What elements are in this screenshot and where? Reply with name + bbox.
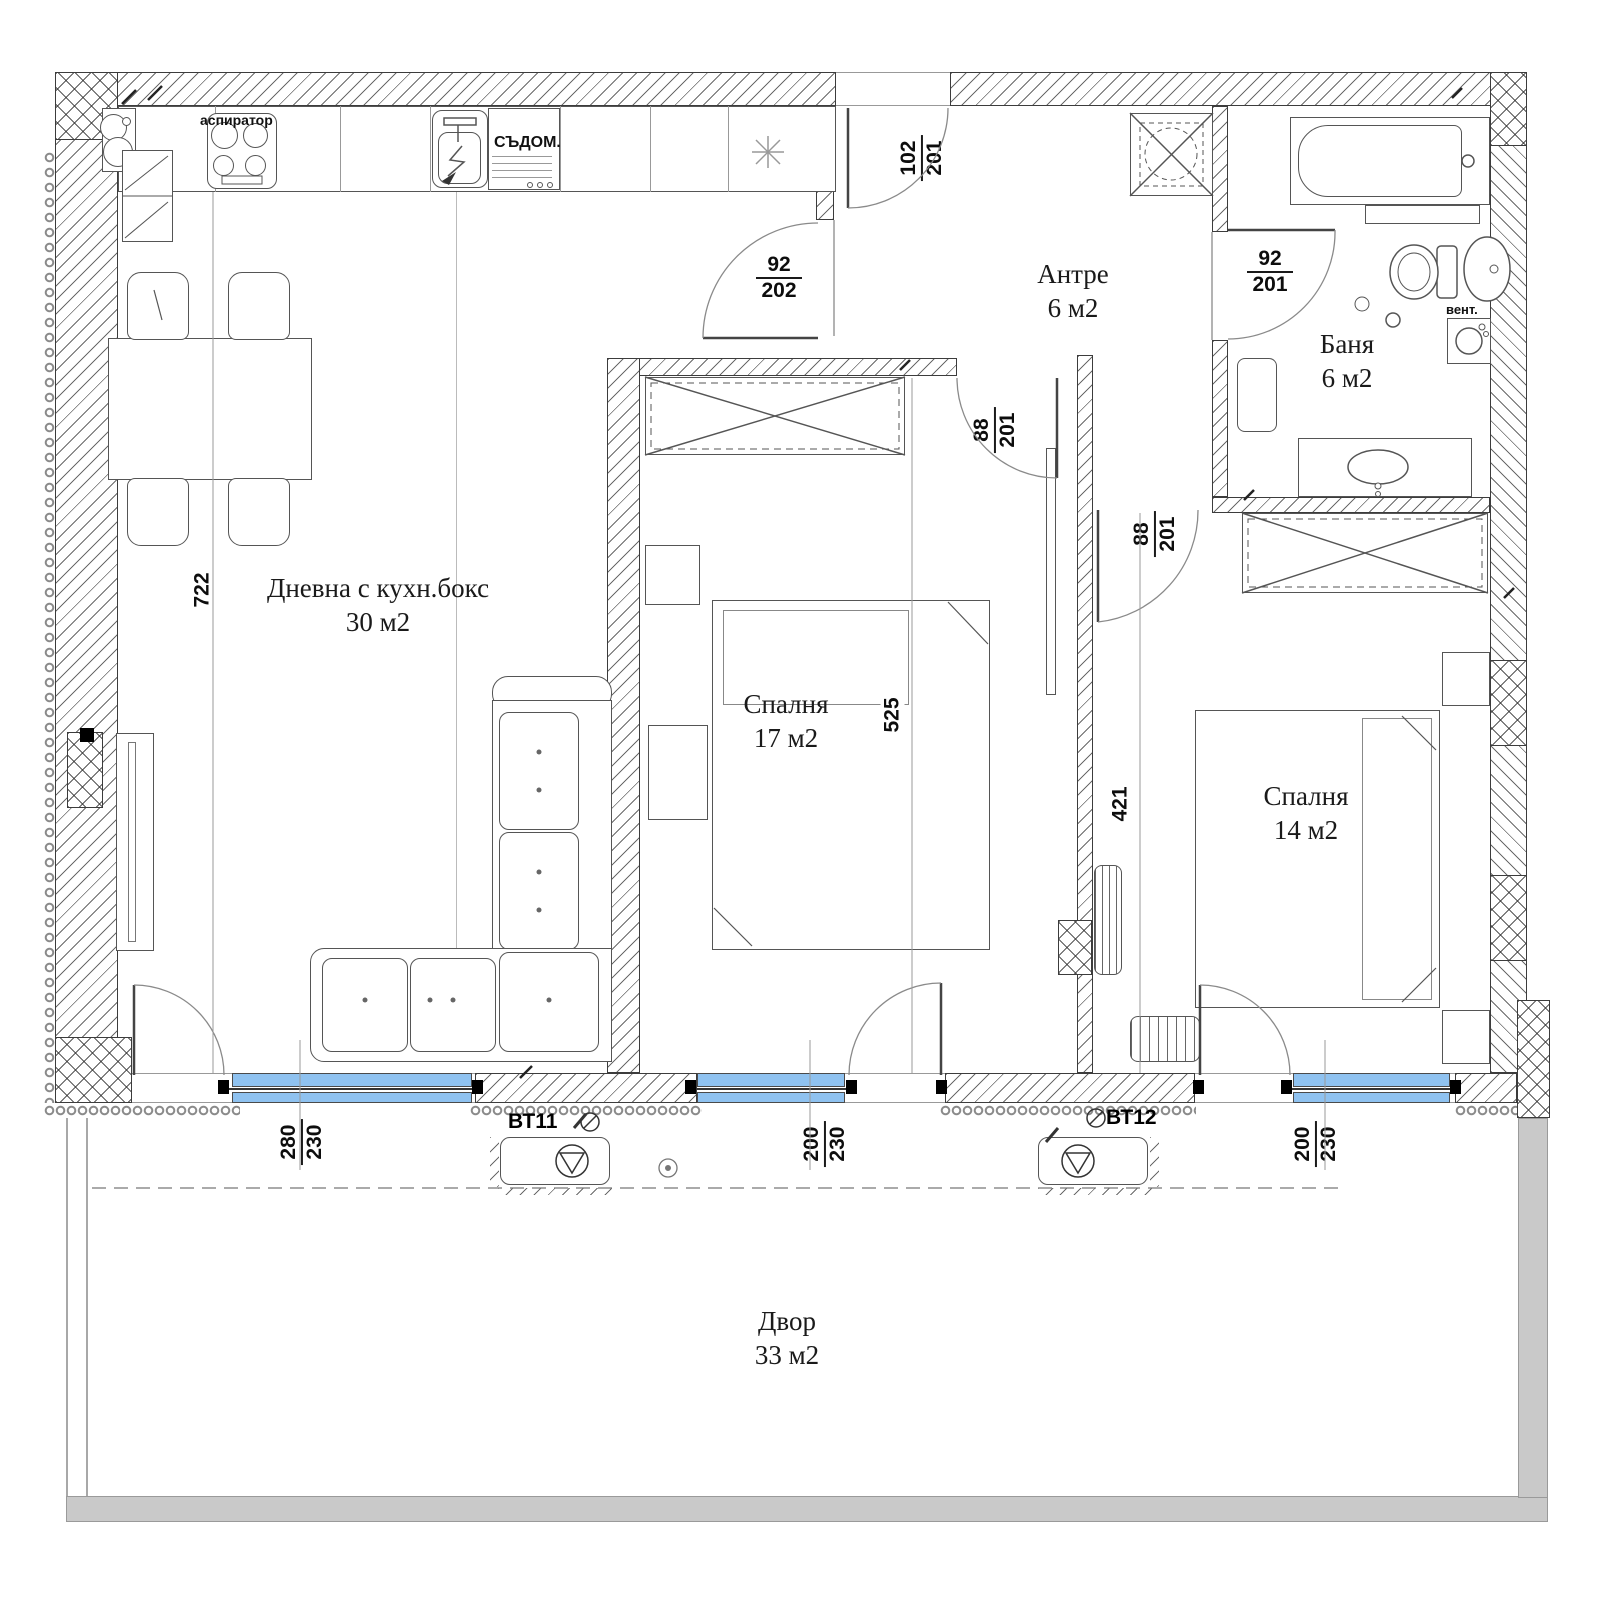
- label-window-living: 280 230: [278, 1107, 326, 1177]
- wall-left-patch: [67, 732, 103, 808]
- label-door-living-hall: 92 202: [753, 254, 805, 302]
- kitchen-oven-unit: [122, 150, 173, 242]
- counter-div-6: [728, 106, 729, 192]
- window-bedroom1-outer: [697, 1073, 845, 1087]
- duct-box: [1058, 920, 1092, 975]
- wall-right-patch-2: [1490, 875, 1527, 961]
- dim-bedroom1-depth: 525: [881, 694, 905, 735]
- toilet-bowl: [1390, 245, 1438, 299]
- yard-right-wall: [1518, 1118, 1548, 1498]
- vt12-hatch-strip: [1150, 1137, 1159, 1187]
- living-name: Дневна с кухн.бокс: [253, 572, 503, 606]
- living-window-height: 230: [304, 1125, 326, 1160]
- hall-area: 6 м2: [993, 292, 1153, 326]
- bed2-pillows: [1362, 718, 1432, 1000]
- hall-name: Антре: [993, 258, 1153, 292]
- dim-living-depth: 722: [191, 569, 215, 610]
- sofa-cushion-v2: [499, 832, 579, 950]
- vt11-vent-box: [500, 1137, 610, 1185]
- marker-2: [472, 1080, 483, 1094]
- bedroom2-door-height: 201: [1157, 517, 1179, 552]
- wall-bath-left-upper: [1212, 106, 1228, 232]
- bedroom2-name: Спалня: [1226, 780, 1386, 814]
- bath-small-circle: [1355, 297, 1369, 311]
- chair-2: [228, 272, 290, 340]
- window-living-outer: [232, 1073, 472, 1087]
- bathtub-ledge: [1365, 205, 1480, 224]
- sofa-cushion-h2: [410, 958, 496, 1052]
- dresser-bedroom1: [648, 725, 708, 820]
- bedroom2-window-height: 230: [1318, 1127, 1340, 1162]
- label-hall: Антре 6 м2: [993, 258, 1153, 326]
- bedroom1-window-height: 230: [827, 1127, 849, 1162]
- label-bedroom1: Спалня 17 м2: [706, 688, 866, 756]
- entry-threshold-top: [836, 72, 950, 73]
- wall-right-corner-bottom: [1517, 1000, 1550, 1118]
- nightstand2-top: [1442, 652, 1490, 706]
- wall-bottom-pier-3: [1455, 1073, 1517, 1103]
- wall-bath-bottom: [1212, 497, 1490, 513]
- marker-7: [1281, 1080, 1292, 1094]
- insulation-bottom-2: [470, 1103, 702, 1118]
- boiler-shaft: [1130, 113, 1213, 196]
- label-yard: Двор 33 м2: [707, 1305, 867, 1373]
- window-bedroom2-frame: [1287, 1088, 1456, 1090]
- sofa-cushion-h1: [322, 958, 408, 1052]
- corner-sink-tap: [122, 117, 131, 126]
- stove-burner-4: [245, 155, 266, 176]
- marker-1: [218, 1080, 229, 1094]
- bedroom1-door-height: 201: [997, 413, 1019, 448]
- toilet-tank: [1437, 246, 1457, 298]
- label-vent: вент.: [1446, 302, 1478, 317]
- nightstand2-bottom: [1442, 1010, 1490, 1064]
- yard-left-wall: [66, 1118, 88, 1500]
- window-bedroom1-inner: [697, 1092, 845, 1103]
- sofa-corner-cushion: [499, 952, 599, 1052]
- dw-line-1: [492, 156, 552, 157]
- wall-right-patch-1: [1490, 660, 1527, 746]
- label-bedroom2: Спалня 14 м2: [1226, 780, 1386, 848]
- wall-bath-left-lower: [1212, 340, 1228, 497]
- bedroom1-yard-door-arc: [849, 983, 941, 1075]
- window-living-frame: [226, 1088, 478, 1090]
- yard-drain-dot: [666, 1166, 671, 1171]
- label-window-bedroom1: 200 230: [801, 1109, 849, 1179]
- counter-div-5: [650, 106, 651, 192]
- window-living-inner: [232, 1092, 472, 1103]
- marker-left-wall: [80, 728, 94, 742]
- vt12-hatch-under: [1038, 1188, 1152, 1195]
- window-bedroom1-frame: [691, 1088, 851, 1090]
- wall-left-corner-bottom: [55, 1037, 132, 1103]
- counter-div-2: [340, 106, 341, 192]
- bedroom2-window-width: 200: [1292, 1127, 1314, 1162]
- yard-bottom-wall: [66, 1496, 1548, 1522]
- wardrobe-bedroom2: [1242, 513, 1488, 593]
- nightstand-bedroom1: [645, 545, 700, 605]
- wall-right-corner-top: [1490, 72, 1527, 146]
- bath-vanity: [1298, 438, 1472, 497]
- label-window-bedroom2: 200 230: [1292, 1109, 1340, 1179]
- insulation-bottom-3: [940, 1103, 1196, 1118]
- wall-bottom-pier-1: [475, 1073, 697, 1103]
- hall-mirror: [1046, 448, 1056, 695]
- washing-machine: [1447, 318, 1491, 364]
- entry-door-height: 201: [924, 141, 946, 176]
- counter-div-3: [430, 106, 431, 192]
- marker-4: [846, 1080, 857, 1094]
- yard-name: Двор: [707, 1305, 867, 1339]
- chair-1: [127, 272, 189, 340]
- label-door-entry: 102 201: [898, 123, 946, 193]
- toilet-bowl-inner: [1398, 253, 1430, 291]
- vt12-vent-box: [1038, 1137, 1148, 1185]
- insulation-bottom-1: [44, 1103, 240, 1118]
- bedroom2-door-width: 88: [1131, 522, 1153, 545]
- label-dishwasher: СЪДОМ.: [494, 134, 561, 152]
- insulation-bottom-4: [1455, 1103, 1517, 1118]
- entry-door-width: 102: [898, 141, 920, 176]
- wall-bedroom1-top: [607, 358, 957, 376]
- wall-top-left: [55, 72, 836, 106]
- vt11-hatch-under: [498, 1188, 612, 1195]
- kitchen-sink-basin: [438, 132, 481, 184]
- entry-threshold-bottom: [836, 105, 950, 106]
- chair-4: [228, 478, 290, 546]
- label-living: Дневна с кухн.бокс 30 м2: [253, 572, 503, 640]
- label-door-bedroom2: 88 201: [1131, 499, 1179, 569]
- bedroom1-window-width: 200: [801, 1127, 823, 1162]
- bath-floor-drain: [1386, 313, 1400, 327]
- radiator-bedroom2-wall: [1094, 865, 1122, 975]
- label-vt12: ВТ12: [1106, 1106, 1157, 1130]
- label-door-bedroom1: 88 201: [971, 395, 1019, 465]
- living-window-width: 280: [278, 1125, 300, 1160]
- radiator-bedroom2-window: [1130, 1016, 1200, 1062]
- tv-screen: [128, 742, 136, 942]
- living-hall-door-height: 202: [761, 280, 796, 302]
- bedroom1-name: Спалня: [706, 688, 866, 722]
- vt11-hatch-strip: [490, 1137, 499, 1187]
- floor-plan: Дневна с кухн.бокс 30 м2 Спалня 17 м2 Сп…: [0, 0, 1600, 1623]
- living-hall-door-width: 92: [767, 254, 790, 276]
- yard-area: 33 м2: [707, 1339, 867, 1373]
- yard-drain-icon: [659, 1159, 677, 1177]
- bedroom1-door-width: 88: [971, 418, 993, 441]
- bath-area: 6 м2: [1267, 362, 1427, 396]
- sofa-cushion-v1: [499, 712, 579, 830]
- dw-line-2: [492, 163, 552, 164]
- marker-6: [1193, 1080, 1204, 1094]
- label-bath: Баня 6 м2: [1267, 328, 1427, 396]
- bath-door-height: 201: [1252, 274, 1287, 296]
- bedroom1-area: 17 м2: [706, 722, 866, 756]
- dim-bedroom2-depth: 421: [1109, 783, 1133, 824]
- bath-door-width: 92: [1258, 248, 1281, 270]
- stove-burner-3: [213, 155, 234, 176]
- bathtub-inner: [1298, 125, 1462, 197]
- chair-3: [127, 478, 189, 546]
- marker-5: [936, 1080, 947, 1094]
- living-yard-door-arc: [134, 985, 224, 1075]
- bath-name: Баня: [1267, 328, 1427, 362]
- wall-top-right: [950, 72, 1527, 106]
- marker-8: [1450, 1080, 1461, 1094]
- dining-table: [108, 338, 312, 480]
- dw-line-4: [492, 177, 552, 178]
- label-door-bath: 92 201: [1244, 248, 1296, 296]
- wall-bottom-pier-2: [945, 1073, 1195, 1103]
- bedroom2-area: 14 м2: [1226, 814, 1386, 848]
- window-bedroom2-inner: [1293, 1092, 1450, 1103]
- window-bedroom2-outer: [1293, 1073, 1450, 1087]
- label-vt11: ВТ11: [508, 1110, 557, 1134]
- wardrobe-bedroom1: [645, 377, 905, 455]
- living-area: 30 м2: [253, 606, 503, 640]
- marker-3: [685, 1080, 696, 1094]
- dw-line-3: [492, 170, 552, 171]
- label-hood: аспиратор: [200, 112, 273, 128]
- wall-left: [55, 72, 118, 1073]
